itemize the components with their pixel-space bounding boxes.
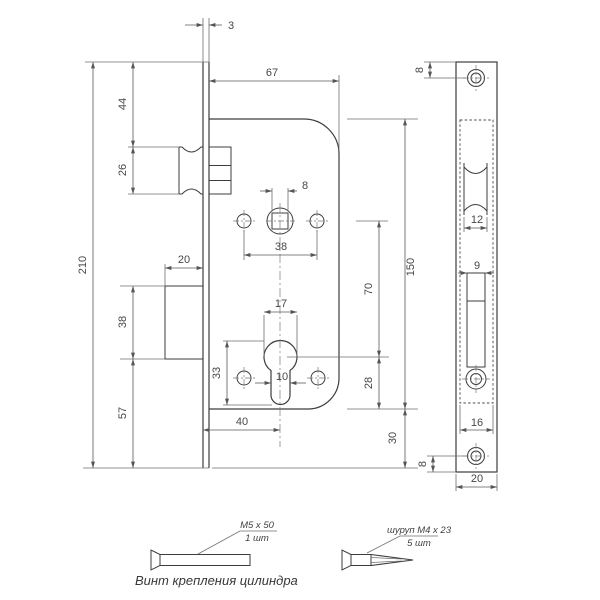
dim-plate-width: 20 bbox=[456, 473, 497, 487]
dim-text-67: 67 bbox=[266, 67, 278, 79]
dim-text-40: 40 bbox=[236, 416, 248, 428]
dim-cylinder-slot-width: 10 bbox=[255, 371, 306, 383]
dim-top-to-latch: 44 bbox=[117, 62, 133, 147]
cylinder-screw-caption: Винт крепления цилиндра bbox=[135, 573, 298, 588]
left-view: 3 67 210 44 26 38 57 20 bbox=[77, 18, 418, 468]
deadbolt-slot-front bbox=[467, 273, 485, 367]
dim-latch-height: 26 bbox=[117, 147, 133, 194]
dim-text-8-top: 8 bbox=[414, 67, 426, 73]
faceplate-top-screw-hole bbox=[463, 65, 489, 91]
dim-text-16: 16 bbox=[471, 417, 483, 429]
dim-deadbolt-slot-width: 9 bbox=[458, 260, 494, 273]
dim-bottom-screw-offset: 8 bbox=[417, 456, 433, 472]
cylinder-screw-drawing: M5 x 50 1 шт bbox=[151, 520, 277, 570]
extension-lines-right-view bbox=[424, 62, 497, 491]
dim-text-8-bottom: 8 bbox=[417, 461, 429, 467]
faceplate-middle-screw-hole bbox=[462, 365, 490, 393]
dim-cylinder-height: 33 bbox=[211, 341, 227, 405]
drawing-canvas: 3 67 210 44 26 38 57 20 bbox=[0, 0, 600, 600]
dim-text-57: 57 bbox=[117, 407, 129, 419]
dim-faceplate-thickness: 3 bbox=[185, 20, 234, 32]
dim-text-38-deadbolt: 38 bbox=[117, 316, 129, 328]
dim-text-150: 150 bbox=[405, 258, 417, 276]
cylinder-screw-spec: M5 x 50 bbox=[240, 520, 275, 531]
dim-body-width-front: 16 bbox=[460, 417, 493, 430]
latch-bolt-front bbox=[464, 163, 487, 215]
dim-text-12: 12 bbox=[471, 214, 483, 226]
screw-shaft bbox=[351, 555, 371, 566]
dim-text-44: 44 bbox=[117, 98, 129, 110]
wood-screw-qty: 5 шт bbox=[407, 538, 431, 549]
wood-screw-drawing: шуруп M4 x 23 5 шт bbox=[342, 525, 452, 570]
dim-deadbolt-height: 38 bbox=[117, 286, 133, 359]
dim-text-26: 26 bbox=[117, 164, 129, 176]
latch-bolt-side bbox=[179, 147, 231, 194]
technical-drawing-mortise-lock: 3 67 210 44 26 38 57 20 bbox=[0, 0, 600, 600]
dim-text-38-screws: 38 bbox=[275, 241, 287, 253]
screw-head bbox=[342, 550, 351, 570]
dim-body-height: 150 bbox=[405, 119, 417, 409]
right-view: 8 12 9 16 8 20 bbox=[414, 62, 497, 491]
screw-threaded-tip bbox=[371, 555, 413, 566]
dim-deadbolt-depth: 20 bbox=[165, 254, 203, 268]
lock-body-outline bbox=[209, 119, 339, 409]
dim-backset: 40 bbox=[203, 416, 280, 430]
dim-bottom-margin: 57 bbox=[117, 359, 133, 468]
dim-text-28: 28 bbox=[363, 377, 375, 389]
dim-text-8-spindle: 8 bbox=[302, 180, 308, 192]
dim-cylinder-width: 17 bbox=[264, 298, 297, 312]
dim-text-20-plate: 20 bbox=[471, 473, 483, 485]
dim-text-33: 33 bbox=[211, 367, 223, 379]
dim-text-20-deadbolt: 20 bbox=[178, 254, 190, 266]
dim-body-to-plate-bottom: 30 bbox=[387, 409, 405, 468]
cylinder-screw-qty: 1 шт bbox=[245, 533, 269, 544]
dim-handle-screw-spacing: 38 bbox=[244, 241, 317, 255]
dim-spindle-square: 8 bbox=[260, 180, 308, 192]
dim-text-10: 10 bbox=[276, 371, 288, 383]
dim-top-screw-offset: 8 bbox=[414, 62, 430, 78]
dim-text-30: 30 bbox=[387, 432, 399, 444]
dim-spindle-to-cylinder: 70 bbox=[363, 221, 379, 357]
centerlines bbox=[266, 203, 295, 447]
dim-body-width: 67 bbox=[209, 67, 339, 81]
screw-shaft bbox=[160, 555, 250, 566]
dim-text-210: 210 bbox=[77, 256, 89, 274]
dim-text-17: 17 bbox=[275, 298, 287, 310]
dim-latch-width: 12 bbox=[464, 214, 487, 228]
wood-screw-spec: шуруп M4 x 23 bbox=[387, 525, 452, 536]
dim-cylinder-to-bottom: 28 bbox=[363, 357, 379, 409]
screw-head bbox=[151, 550, 160, 570]
hardware-screws: M5 x 50 1 шт шуруп M4 x 23 5 шт Винт кре… bbox=[135, 520, 452, 588]
dim-total-height: 210 bbox=[77, 62, 93, 468]
deadbolt-side bbox=[165, 286, 203, 359]
dim-text-3: 3 bbox=[228, 20, 234, 32]
dim-text-70: 70 bbox=[363, 283, 375, 295]
faceplate-side bbox=[203, 62, 209, 468]
dim-text-9: 9 bbox=[474, 260, 480, 272]
